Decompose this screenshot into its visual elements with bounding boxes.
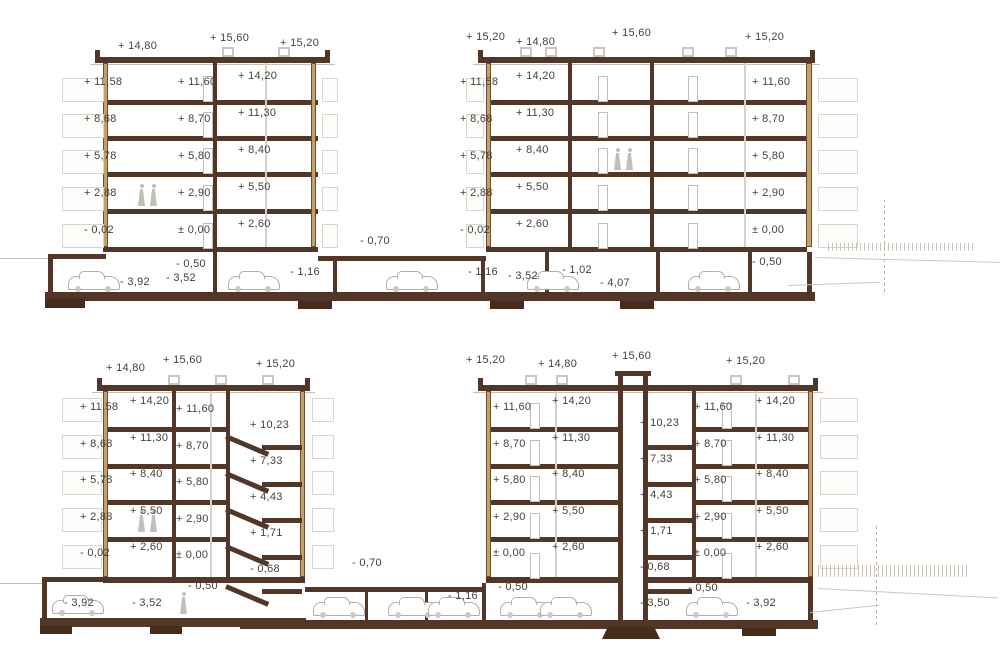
balcony xyxy=(322,114,338,138)
car-icon xyxy=(686,602,738,616)
elevation-column: + 11,58 + 8,68 + 5,78 + 2,88 - 0,02 xyxy=(460,76,498,236)
footing xyxy=(742,628,776,636)
roof-vent xyxy=(525,375,537,385)
elevation-label: + 11,30 xyxy=(516,107,555,119)
elevation-label: + 15,20 xyxy=(745,31,784,43)
elevation-label: + 8,70 xyxy=(694,438,732,450)
roof-slab xyxy=(478,57,815,63)
ground-slab xyxy=(486,247,807,252)
roof-vent xyxy=(545,47,557,57)
elevation-label: + 10,23 xyxy=(640,417,679,429)
roof-vent xyxy=(520,47,532,57)
roof-vent xyxy=(215,375,227,385)
person-icon xyxy=(138,184,145,206)
roof-line xyxy=(473,64,820,65)
roof-vent xyxy=(593,47,605,57)
roof-vent xyxy=(730,375,742,385)
elevation-label: + 11,58 xyxy=(80,401,118,413)
elevation-column: + 14,20 + 11,30 + 8,40 + 5,50 + 2,60 xyxy=(516,70,555,230)
elevation-label: + 15,60 xyxy=(612,350,651,362)
elevation-label: + 1,71 xyxy=(640,525,679,537)
balcony xyxy=(818,114,858,138)
elevation-label: - 3,92 xyxy=(746,597,776,609)
elevation-label: + 8,40 xyxy=(756,468,795,480)
elevation-column: + 11,58 + 8,68 + 5,78 + 2,88 - 0,02 xyxy=(80,401,118,559)
elevation-label: + 1,71 xyxy=(250,527,289,539)
elevation-label: ± 0,00 xyxy=(178,224,216,236)
elevation-label: - 0,50 xyxy=(498,581,528,593)
elevation-label: + 2,60 xyxy=(756,541,795,553)
elevation-label: - 3,50 xyxy=(640,597,679,609)
elevation-label: - 0,70 xyxy=(360,235,390,247)
exterior-wall xyxy=(808,391,813,577)
roof-slab xyxy=(97,385,310,391)
elevation-label: + 5,80 xyxy=(176,476,214,488)
parapet xyxy=(478,378,483,387)
elevator-shaft-wall xyxy=(618,374,623,625)
elevation-label: - 0,50 xyxy=(688,582,718,594)
balcony xyxy=(820,398,858,422)
parapet xyxy=(97,378,102,387)
section-drawing-canvas: + 14,80 + 15,60 + 15,20 + 15,20 + 14,80 … xyxy=(0,0,1000,666)
elevation-label: + 2,60 xyxy=(552,541,591,553)
balcony xyxy=(820,435,858,459)
elevation-label: + 2,90 xyxy=(178,187,216,199)
balcony xyxy=(312,545,334,569)
terrain-slope-line xyxy=(810,605,880,613)
footing xyxy=(40,626,72,634)
terrain-slope-line xyxy=(788,282,880,286)
elevation-label: + 11,60 xyxy=(493,401,531,413)
elevation-label: + 11,30 xyxy=(130,432,169,444)
roof-slab xyxy=(478,385,818,391)
terrain-slope-line xyxy=(815,257,1000,263)
balcony xyxy=(322,187,338,211)
boundary-line xyxy=(876,525,877,625)
elevation-label: - 3,52 xyxy=(166,272,196,284)
garage-pier xyxy=(365,592,368,620)
stair-landing xyxy=(262,589,302,594)
elevation-label: + 5,80 xyxy=(178,150,216,162)
elevation-column: + 10,23 + 7,33 + 4,43 + 1,71 - 0,68 - 3,… xyxy=(640,417,679,609)
garage-wall xyxy=(807,252,812,292)
balcony xyxy=(820,508,858,532)
car-icon xyxy=(313,602,365,616)
balcony xyxy=(818,187,858,211)
exterior-wall xyxy=(311,63,316,247)
elevation-label: + 8,40 xyxy=(130,468,169,480)
door-opening xyxy=(530,513,540,539)
elevation-label: + 5,50 xyxy=(238,181,277,193)
car-icon xyxy=(386,276,438,290)
elevation-label: + 14,20 xyxy=(516,70,555,82)
roof-vent xyxy=(682,47,694,57)
elevation-column: + 11,60 + 8,70 + 5,80 + 2,90 ± 0,00 xyxy=(752,76,790,236)
elevation-label: + 11,58 xyxy=(460,76,498,88)
elevation-label: - 0,50 xyxy=(176,258,206,270)
parapet xyxy=(810,50,815,59)
elevation-label: - 0,50 xyxy=(752,256,782,268)
person-icon xyxy=(626,148,633,170)
car-icon xyxy=(228,276,280,290)
elevation-label: + 7,33 xyxy=(250,455,289,467)
balcony xyxy=(818,78,858,102)
roof-vent xyxy=(725,47,737,57)
roof-line xyxy=(473,392,823,393)
elevation-column: + 14,20 + 11,30 + 8,40 + 5,50 + 2,60 xyxy=(552,395,591,553)
person-icon xyxy=(180,592,187,614)
elevation-label: - 3,52 xyxy=(132,597,162,609)
parapet xyxy=(478,50,483,59)
elevation-label: + 2,90 xyxy=(493,511,531,523)
elevation-label: - 0,50 xyxy=(188,580,218,592)
elevation-label: + 5,78 xyxy=(84,150,122,162)
elevation-label: + 14,20 xyxy=(552,395,591,407)
footing xyxy=(150,626,182,634)
elevation-label: - 0,68 xyxy=(640,561,679,573)
elevation-label: + 4,43 xyxy=(640,489,679,501)
shaft-footing xyxy=(602,627,660,639)
parapet xyxy=(813,378,818,387)
elevation-label: + 14,80 xyxy=(516,36,555,48)
elevation-label: - 0,02 xyxy=(80,547,118,559)
basement-ceiling-slab xyxy=(42,577,106,582)
elevation-label: + 8,68 xyxy=(80,438,118,450)
door-opening xyxy=(598,112,608,138)
footing xyxy=(45,299,85,308)
car-icon xyxy=(428,602,480,616)
elevation-label: + 5,50 xyxy=(552,505,591,517)
balcony xyxy=(312,471,334,495)
elevation-label: + 4,43 xyxy=(250,491,289,503)
balcony xyxy=(322,150,338,174)
elevation-column: + 10,23 + 7,33 + 4,43 + 1,71 - 0,68 xyxy=(250,419,289,575)
elevation-column: + 11,60 + 8,70 + 5,80 + 2,90 ± 0,00 xyxy=(694,401,732,559)
elevation-label: + 14,80 xyxy=(538,358,577,370)
terrain-hatch xyxy=(828,243,976,251)
car-icon xyxy=(540,602,592,616)
garage-wall xyxy=(808,577,813,620)
elevation-label: + 2,88 xyxy=(84,187,122,199)
elevation-label: - 0,68 xyxy=(250,563,289,575)
exterior-wall xyxy=(806,63,812,247)
roof-vent xyxy=(262,375,274,385)
elevation-label: + 2,90 xyxy=(752,187,790,199)
elevation-label: + 2,60 xyxy=(130,541,169,553)
elevation-label: - 3,52 xyxy=(508,270,538,282)
elevation-label: + 5,80 xyxy=(493,474,531,486)
elevation-label: + 2,88 xyxy=(80,511,118,523)
elevation-label: - 0,02 xyxy=(84,224,122,236)
footing xyxy=(490,301,524,309)
footing xyxy=(620,301,654,309)
elevation-label: + 10,23 xyxy=(250,419,289,431)
elevation-label: + 5,50 xyxy=(130,505,169,517)
parapet xyxy=(325,50,330,59)
elevation-label: + 15,20 xyxy=(726,355,765,367)
elevation-label: + 8,70 xyxy=(752,113,790,125)
elevation-label: + 15,60 xyxy=(612,27,651,39)
elevation-label: + 15,60 xyxy=(163,354,202,366)
terrain-hatch xyxy=(818,565,968,577)
door-opening xyxy=(688,223,698,249)
elevation-label: + 8,40 xyxy=(516,144,555,156)
terrain-slope-line xyxy=(818,588,998,598)
garage-pier xyxy=(656,252,660,292)
stair-flight xyxy=(225,584,269,607)
elevation-label: + 15,20 xyxy=(280,37,319,49)
elevation-label: - 1,16 xyxy=(468,266,498,278)
elevation-label: + 15,20 xyxy=(466,354,505,366)
elevation-label: + 11,60 xyxy=(176,403,214,415)
parapet xyxy=(305,378,310,387)
elevation-label: + 8,68 xyxy=(460,113,498,125)
elevation-column: + 11,60 + 8,70 + 5,80 + 2,90 ± 0,00 xyxy=(176,403,214,561)
person-icon xyxy=(614,148,621,170)
courtyard-slab xyxy=(318,256,486,261)
elevation-label: + 14,20 xyxy=(238,70,277,82)
elevation-column: + 11,58 + 8,68 + 5,78 + 2,88 - 0,02 xyxy=(84,76,122,236)
balcony xyxy=(312,435,334,459)
partition-wall xyxy=(744,63,746,247)
door-opening xyxy=(530,476,540,502)
elevation-label: + 5,80 xyxy=(752,150,790,162)
door-opening xyxy=(598,223,608,249)
garage-wall xyxy=(48,254,53,292)
elevation-label: + 11,58 xyxy=(84,76,122,88)
balcony xyxy=(818,150,858,174)
boundary-line xyxy=(884,200,885,292)
elevation-label: + 7,33 xyxy=(640,453,679,465)
elevation-label: + 8,40 xyxy=(238,144,277,156)
door-opening xyxy=(598,76,608,102)
garage-floor-slab xyxy=(45,292,815,301)
elevation-label: + 14,20 xyxy=(130,395,169,407)
elevation-label: + 11,60 xyxy=(178,76,216,88)
elevation-label: + 5,78 xyxy=(80,474,118,486)
footing xyxy=(298,301,332,309)
door-opening xyxy=(688,76,698,102)
parapet xyxy=(95,50,100,59)
elevation-label: ± 0,00 xyxy=(176,549,214,561)
elevation-label: + 8,68 xyxy=(84,113,122,125)
ground-line xyxy=(0,583,42,584)
elevation-label: + 8,70 xyxy=(493,438,531,450)
elevation-column: + 14,20 + 11,30 + 8,40 + 5,50 + 2,60 xyxy=(756,395,795,553)
interior-wall xyxy=(650,63,654,247)
garage-pier xyxy=(333,256,337,292)
elevation-label: + 5,78 xyxy=(460,150,498,162)
elevation-label: + 5,80 xyxy=(694,474,732,486)
elevation-label: + 11,60 xyxy=(694,401,732,413)
roof-vent xyxy=(556,375,568,385)
elevation-label: + 11,30 xyxy=(552,432,591,444)
elevation-label: + 5,50 xyxy=(516,181,555,193)
elevation-label: + 15,20 xyxy=(256,358,295,370)
door-opening xyxy=(688,112,698,138)
garage-pier xyxy=(213,252,217,292)
elevation-label: - 3,92 xyxy=(64,597,94,609)
door-opening xyxy=(530,440,540,466)
garage-floor-slab xyxy=(240,620,818,629)
elevation-label: + 2,90 xyxy=(176,513,214,525)
garage-ceiling-slab xyxy=(48,254,106,259)
elevation-label: + 8,70 xyxy=(178,113,216,125)
roof-vent xyxy=(788,375,800,385)
elevation-label: + 14,80 xyxy=(118,40,157,52)
basement-wall xyxy=(42,577,47,618)
elevation-column: + 14,20 + 11,30 + 8,40 + 5,50 + 2,60 xyxy=(238,70,277,230)
roof-vent xyxy=(222,47,234,57)
ground-line xyxy=(0,258,48,259)
elevation-column: + 14,20 + 11,30 + 8,40 + 5,50 + 2,60 xyxy=(130,395,169,553)
door-opening xyxy=(598,148,608,174)
elevation-label: ± 0,00 xyxy=(694,547,732,559)
elevation-label: - 1,02 xyxy=(562,264,592,276)
elevation-label: + 5,50 xyxy=(756,505,795,517)
door-opening xyxy=(530,403,540,429)
door-opening xyxy=(688,148,698,174)
elevation-label: + 2,90 xyxy=(694,511,732,523)
door-opening xyxy=(688,185,698,211)
elevation-label: + 2,60 xyxy=(238,218,277,230)
elevation-label: + 14,20 xyxy=(756,395,795,407)
elevation-label: ± 0,00 xyxy=(752,224,790,236)
balcony xyxy=(312,398,334,422)
elevation-label: + 11,30 xyxy=(756,432,795,444)
elevation-label: - 3,92 xyxy=(120,276,150,288)
door-opening xyxy=(530,553,540,579)
balcony xyxy=(820,471,858,495)
garage-pier xyxy=(482,583,486,620)
exterior-wall xyxy=(486,391,491,577)
car-icon xyxy=(688,276,740,290)
elevation-column: + 11,60 + 8,70 + 5,80 + 2,90 ± 0,00 xyxy=(493,401,531,559)
elevation-label: - 1,16 xyxy=(448,590,478,602)
elevation-label: - 0,70 xyxy=(352,557,382,569)
car-icon xyxy=(68,276,120,290)
elevation-label: ± 0,00 xyxy=(493,547,531,559)
elevation-label: - 0,02 xyxy=(460,224,498,236)
elevation-label: + 11,30 xyxy=(238,107,277,119)
elevation-label: + 15,20 xyxy=(466,31,505,43)
elevation-label: - 4,07 xyxy=(600,277,630,289)
person-icon xyxy=(150,184,157,206)
elevation-label: + 2,88 xyxy=(460,187,498,199)
elevation-label: + 8,70 xyxy=(176,440,214,452)
elevation-label: + 14,80 xyxy=(106,362,145,374)
balcony xyxy=(312,508,334,532)
elevation-label: + 15,60 xyxy=(210,32,249,44)
balcony xyxy=(322,78,338,102)
balcony xyxy=(322,224,338,248)
door-opening xyxy=(598,185,608,211)
elevation-column: + 11,60 + 8,70 + 5,80 + 2,90 ± 0,00 xyxy=(178,76,216,236)
roof-line xyxy=(92,392,315,393)
elevation-label: + 8,40 xyxy=(552,468,591,480)
elevation-label: - 1,16 xyxy=(290,266,320,278)
elevation-label: + 11,60 xyxy=(752,76,790,88)
interior-wall xyxy=(568,63,572,247)
elevation-label: + 2,60 xyxy=(516,218,555,230)
roof-vent xyxy=(168,375,180,385)
